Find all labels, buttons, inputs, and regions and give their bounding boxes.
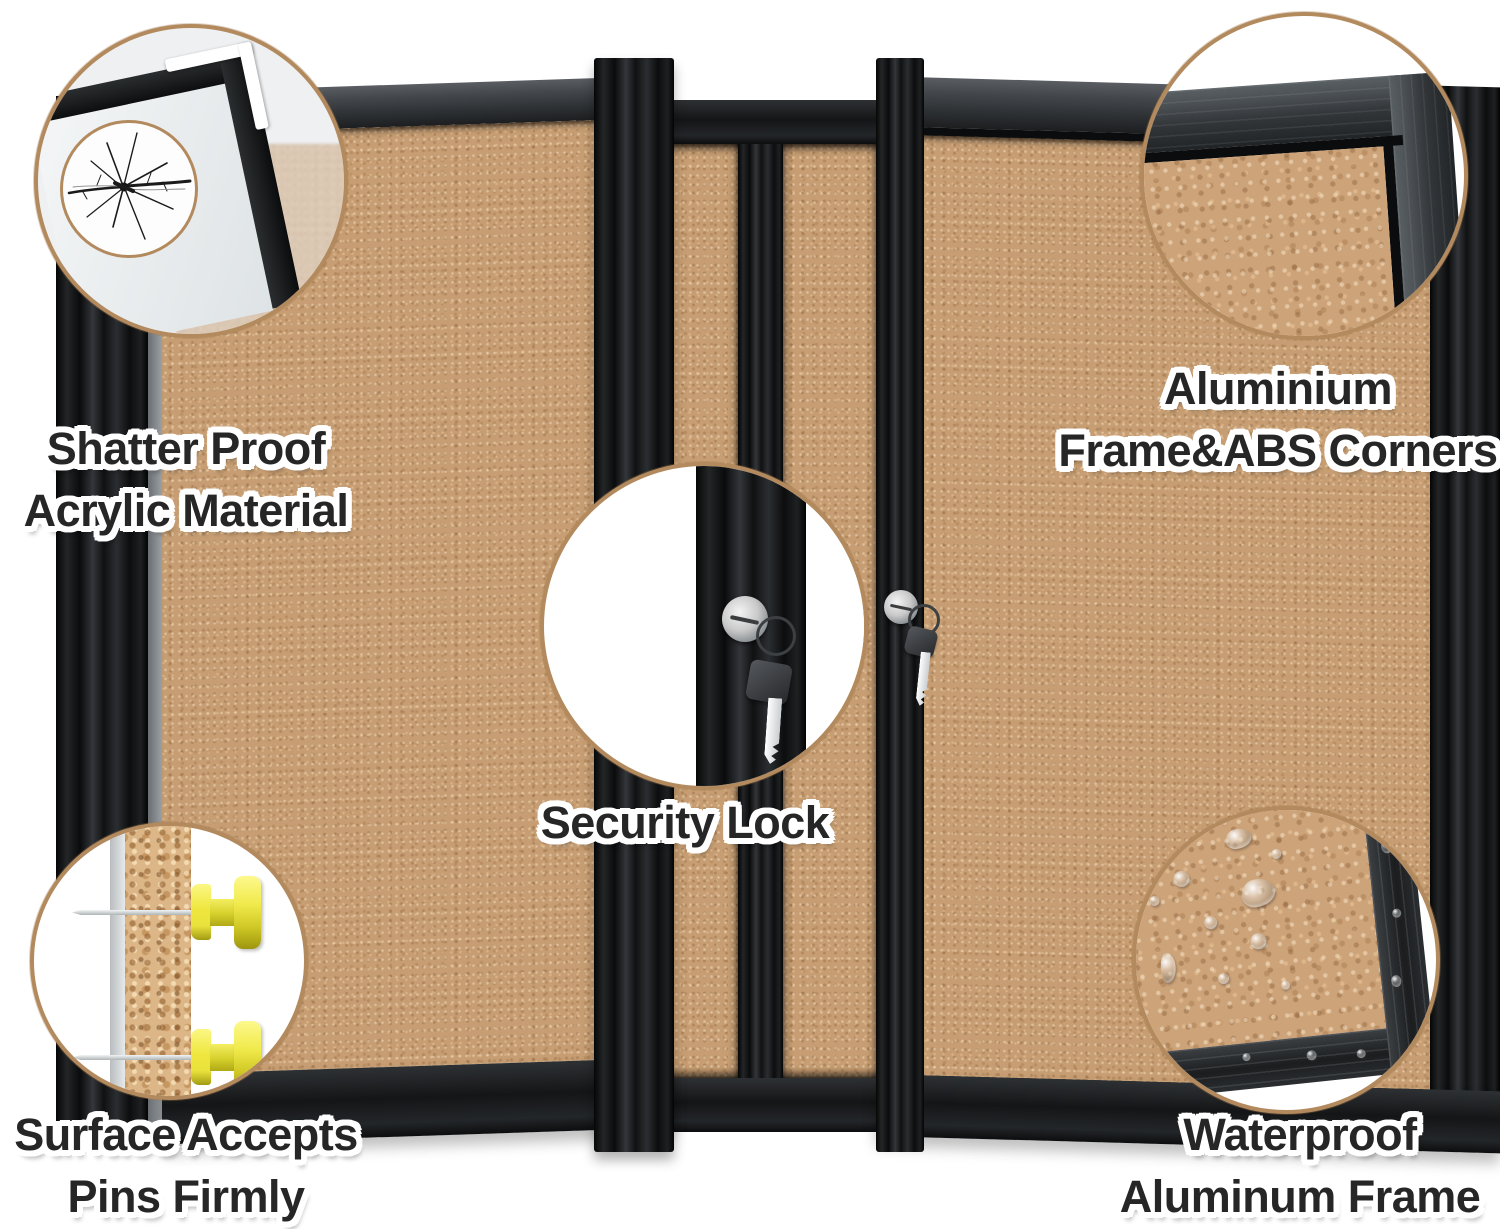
background-gap xyxy=(806,466,864,786)
wet-cork xyxy=(1132,806,1386,1055)
pin-flange xyxy=(191,1029,211,1085)
feature-label-line: Security Lock xyxy=(510,792,860,854)
waterproof-callout xyxy=(1132,806,1440,1114)
pin-cap xyxy=(234,1021,261,1094)
crack-icon xyxy=(63,123,195,255)
pin-waist xyxy=(210,1044,235,1071)
pushpin-callout xyxy=(30,822,308,1100)
shatter-proof-callout xyxy=(34,24,348,338)
backboard-bottom-frame xyxy=(640,1078,880,1132)
feature-label-line: Aluminium xyxy=(1058,358,1498,420)
lock-slot xyxy=(730,615,760,625)
feature-label-line: Shatter Proof xyxy=(0,418,382,480)
feature-label-aluminium-corners: Aluminium Frame&ABS Corners xyxy=(1058,358,1498,482)
wet-corner-group xyxy=(1132,806,1440,1114)
pin-cap xyxy=(234,876,261,949)
feature-label-shatter-proof: Shatter Proof Acrylic Material xyxy=(0,418,382,542)
security-lock-callout xyxy=(540,462,868,790)
key-ring-icon xyxy=(756,616,796,656)
crack-magnifier-circle xyxy=(60,120,198,258)
feature-label-line: Waterproof xyxy=(1100,1104,1500,1166)
feature-label-line: Frame&ABS Corners xyxy=(1058,420,1498,482)
feature-label-line: Pins Firmly xyxy=(0,1166,382,1228)
pin-needle xyxy=(72,1055,194,1060)
feature-label-security-lock: Security Lock xyxy=(510,792,860,854)
lock-slot xyxy=(890,604,912,612)
feature-label-pin-surface: Surface Accepts Pins Firmly xyxy=(0,1104,382,1228)
backboard-top-frame xyxy=(640,100,880,144)
feature-label-line: Aluminum Frame xyxy=(1100,1166,1500,1228)
pin-flange xyxy=(191,884,211,940)
pin-needle xyxy=(72,910,194,915)
feature-label-waterproof: Waterproof Aluminum Frame xyxy=(1100,1104,1500,1228)
corner-cork xyxy=(1140,146,1400,340)
feature-label-line: Acrylic Material xyxy=(0,480,382,542)
frame-corner-callout xyxy=(1140,12,1468,340)
product-feature-image: Shatter Proof Acrylic Material Aluminium… xyxy=(0,0,1500,1229)
feature-label-line: Surface Accepts xyxy=(0,1104,382,1166)
frame-corner-group xyxy=(1140,39,1468,340)
pin-waist xyxy=(210,899,235,926)
